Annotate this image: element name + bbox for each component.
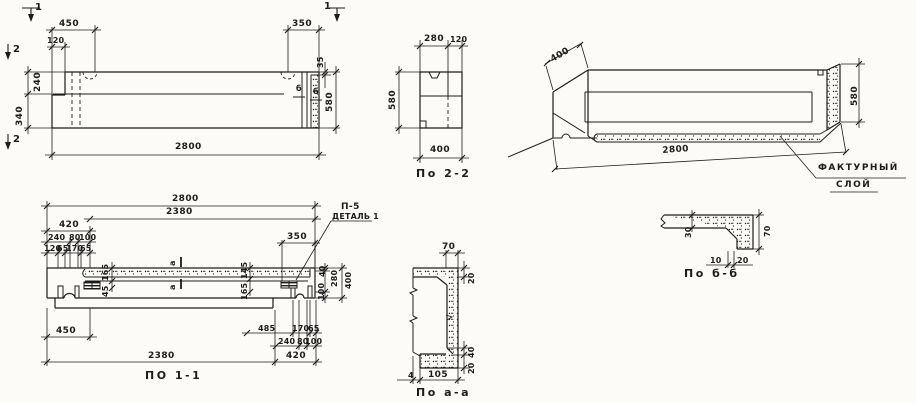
dim-165-plan-right: 165 <box>240 283 249 300</box>
dim-2380-plan-bottom: 2380 <box>148 351 175 361</box>
dim-70-sbb: 70 <box>763 225 772 237</box>
dim-280-s22: 280 <box>424 34 444 44</box>
dim-120-s22: 120 <box>450 35 467 44</box>
dim-580-axon: 580 <box>850 86 860 106</box>
dim-2380-plan-top: 2380 <box>166 207 193 217</box>
blueprint-sheet: 1 1 2 2 450 120 350 35 240 340 580 2800 … <box>0 0 916 403</box>
dim-350-plan: 350 <box>287 232 307 242</box>
section-mark-b-right: б <box>313 87 319 96</box>
dim-65-plan-3: 65 <box>308 324 320 333</box>
dim-400-plan-right: 400 <box>344 272 353 289</box>
dim-40-plan-right: 40 <box>318 265 327 277</box>
dim-2800-axon: 2800 <box>662 144 689 156</box>
dim-580-s22: 580 <box>388 90 398 110</box>
section-mark-2-bottom: 2 <box>13 134 20 145</box>
section-mark-a-top: а <box>168 260 177 266</box>
dim-20-sbb: 20 <box>737 256 749 265</box>
dim-20-saa-top: 20 <box>467 272 476 284</box>
callout-factural-layer-line1: ФАКТУРНЫЙ <box>818 163 899 173</box>
dim-100-plan-top: 100 <box>79 233 96 242</box>
dim-450-plan: 450 <box>56 326 76 336</box>
dim-45-plan-left: 45 <box>101 285 110 297</box>
dim-100-plan-right: 100 <box>317 283 326 300</box>
dim-240-plan-bottom: 240 <box>278 337 295 346</box>
dim-70-saa: 70 <box>442 242 455 252</box>
dim-145-plan-right: 145 <box>240 262 249 279</box>
dim-350-elev: 350 <box>292 19 312 29</box>
dim-2800-elev: 2800 <box>175 142 202 152</box>
detail-callout-p5: П-5 <box>341 202 360 212</box>
dim-420-plan-bottom: 420 <box>286 351 306 361</box>
dim-30-sbb: 30 <box>684 226 693 238</box>
section-mark-a-bottom: а <box>168 284 177 290</box>
dim-35-elev: 35 <box>316 56 325 68</box>
dim-4-saa: 4 <box>408 371 414 380</box>
dim-100-plan-bottom: 100 <box>305 337 322 346</box>
dim-420-plan-top: 420 <box>59 220 79 230</box>
view-label-section-2-2: По 2-2 <box>416 167 471 180</box>
dim-340-elev: 340 <box>15 106 25 126</box>
dim-485-plan: 485 <box>258 324 275 333</box>
section-mark-1-left: 1 <box>35 2 42 13</box>
view-label-section-a-a: По а-а <box>416 386 471 399</box>
dim-240-plan-top: 240 <box>48 233 65 242</box>
dim-280-plan-right: 280 <box>330 270 339 287</box>
elevation-linework <box>5 8 345 160</box>
dim-2800-plan: 2800 <box>172 194 199 204</box>
callout-factural-layer-line2: СЛОЙ <box>836 180 871 190</box>
dim-10-sbb: 10 <box>710 256 722 265</box>
dim-165-plan-left: 165 <box>101 264 110 281</box>
dim-400-s22: 400 <box>430 145 450 155</box>
section-mark-b-left: б <box>296 84 302 93</box>
dim-170-plan-bottom: 170 <box>292 324 309 333</box>
dim-20-saa-bottom: 20 <box>467 362 476 374</box>
view-label-plan-1-1: ПО 1-1 <box>145 369 202 382</box>
dim-65-plan-2: 65 <box>80 244 92 253</box>
view-label-section-b-b: По б-б <box>684 267 740 280</box>
section-mark-2-top: 2 <box>13 44 20 55</box>
detail-callout-detail1: ДЕТАЛЬ 1 <box>332 212 379 221</box>
dim-450-elev: 450 <box>59 19 79 29</box>
section-a-a-linework <box>397 250 470 384</box>
drawing-linework <box>0 0 916 403</box>
dim-580-elev: 580 <box>325 92 335 112</box>
dim-40-saa: 40 <box>467 346 476 358</box>
section-mark-1-right: 1 <box>324 1 331 12</box>
dim-105-saa: 105 <box>428 370 448 380</box>
dim-120-elev: 120 <box>47 36 64 45</box>
dim-240-elev: 240 <box>33 72 43 92</box>
